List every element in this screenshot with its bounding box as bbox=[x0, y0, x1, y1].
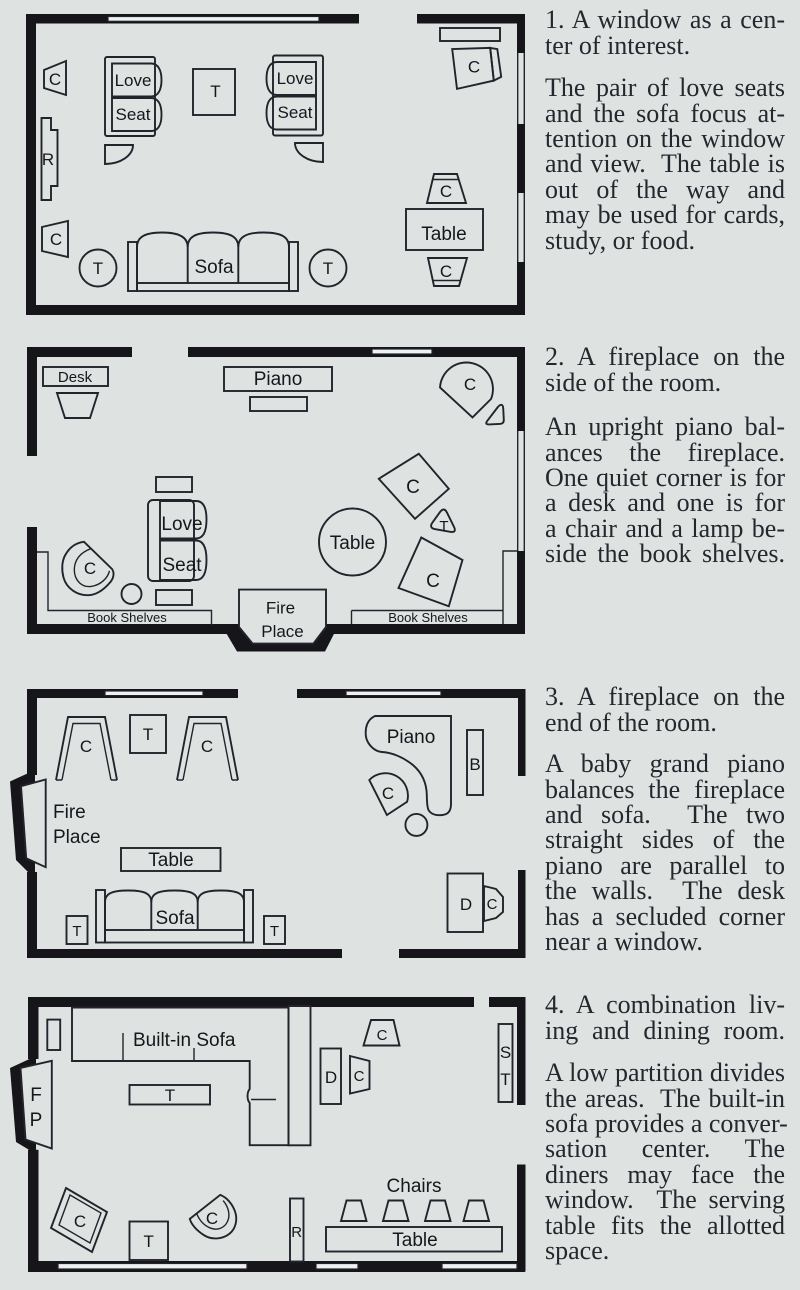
svg-text:C: C bbox=[464, 375, 476, 394]
svg-text:Seat: Seat bbox=[278, 103, 313, 122]
svg-text:T: T bbox=[165, 1086, 175, 1105]
svg-text:B: B bbox=[469, 755, 480, 774]
svg-text:Table: Table bbox=[330, 533, 375, 554]
svg-text:C: C bbox=[406, 477, 420, 498]
svg-text:T: T bbox=[143, 725, 153, 744]
svg-text:Fire: Fire bbox=[53, 802, 86, 823]
svg-text:Sofa: Sofa bbox=[194, 257, 234, 278]
svg-text:C: C bbox=[382, 784, 394, 803]
svg-text:C: C bbox=[74, 1212, 86, 1231]
svg-text:R: R bbox=[42, 150, 54, 169]
svg-text:C: C bbox=[440, 262, 452, 281]
svg-text:Built-in Sofa: Built-in Sofa bbox=[133, 1030, 236, 1051]
svg-text:D: D bbox=[325, 1068, 337, 1087]
svg-text:C: C bbox=[468, 58, 480, 77]
svg-text:C: C bbox=[84, 559, 96, 578]
svg-text:C: C bbox=[80, 737, 92, 756]
svg-text:C: C bbox=[377, 1027, 388, 1044]
svg-text:Love: Love bbox=[161, 514, 202, 535]
svg-text:Sofa: Sofa bbox=[155, 908, 195, 929]
svg-text:C: C bbox=[354, 1068, 365, 1085]
svg-text:R: R bbox=[291, 1224, 302, 1241]
svg-text:Desk: Desk bbox=[58, 369, 93, 386]
svg-text:Book Shelves: Book Shelves bbox=[388, 610, 468, 625]
svg-text:Table: Table bbox=[148, 850, 193, 871]
svg-text:T: T bbox=[270, 923, 279, 940]
svg-text:C: C bbox=[206, 1209, 218, 1228]
svg-text:S: S bbox=[500, 1043, 511, 1062]
svg-text:Chairs: Chairs bbox=[387, 1176, 442, 1197]
svg-text:C: C bbox=[426, 571, 440, 592]
svg-text:C: C bbox=[50, 230, 62, 249]
svg-text:T: T bbox=[72, 923, 81, 940]
svg-text:Love: Love bbox=[115, 71, 152, 90]
svg-text:D: D bbox=[460, 895, 472, 914]
svg-text:Table: Table bbox=[421, 224, 466, 245]
svg-text:Fire: Fire bbox=[266, 599, 295, 618]
svg-text:Place: Place bbox=[261, 622, 304, 641]
svg-text:Love: Love bbox=[277, 69, 314, 88]
svg-text:T: T bbox=[323, 259, 333, 278]
svg-text:T: T bbox=[500, 1070, 510, 1089]
svg-text:F: F bbox=[30, 1085, 42, 1106]
svg-text:T: T bbox=[93, 259, 103, 278]
svg-text:C: C bbox=[201, 737, 213, 756]
svg-text:T: T bbox=[144, 1232, 154, 1251]
svg-text:T: T bbox=[439, 518, 448, 535]
svg-text:C: C bbox=[49, 70, 61, 89]
svg-text:Book Shelves: Book Shelves bbox=[87, 610, 167, 625]
svg-text:Place: Place bbox=[53, 827, 101, 848]
svg-text:Seat: Seat bbox=[116, 105, 151, 124]
svg-text:Piano: Piano bbox=[254, 369, 303, 390]
svg-text:C: C bbox=[440, 182, 452, 201]
svg-text:Seat: Seat bbox=[162, 555, 202, 576]
svg-text:P: P bbox=[30, 1110, 43, 1131]
svg-text:Table: Table bbox=[392, 1230, 437, 1251]
svg-text:C: C bbox=[487, 896, 498, 913]
svg-text:Piano: Piano bbox=[387, 727, 436, 748]
svg-text:T: T bbox=[210, 82, 220, 101]
